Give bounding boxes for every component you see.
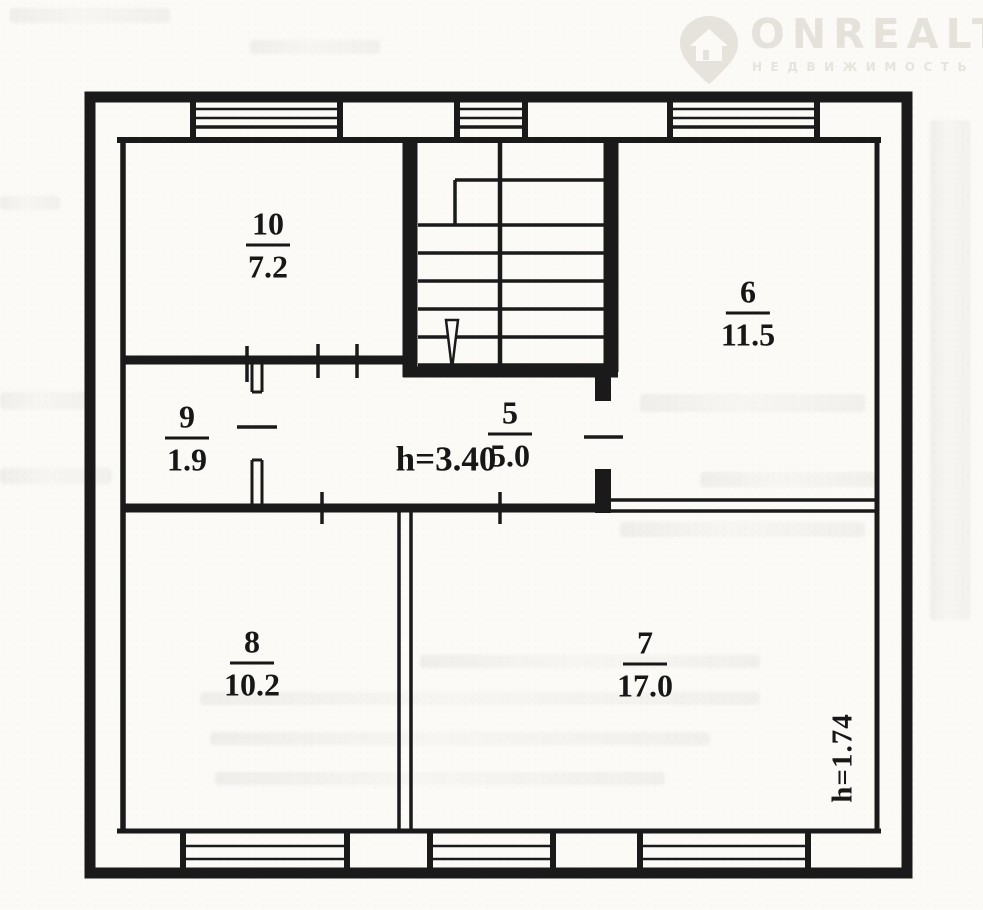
room-10-label: 10 7.2 — [246, 208, 290, 283]
ceiling-height-label: h=3.40 — [396, 442, 497, 477]
room-number: 7 — [634, 627, 656, 663]
room-area: 11.5 — [721, 315, 775, 351]
room-number: 6 — [737, 276, 759, 312]
staircase — [418, 140, 604, 372]
room-number: 10 — [249, 208, 287, 244]
stair-direction-arrow — [446, 320, 458, 369]
room-area: 1.9 — [167, 440, 207, 476]
room-8-label: 8 10.2 — [224, 626, 280, 701]
room-number: 5 — [499, 397, 521, 433]
room-9-label: 9 1.9 — [165, 401, 209, 476]
side-height-label: h=1.74 — [829, 713, 858, 802]
room-6-label: 6 11.5 — [721, 276, 775, 351]
room-area: 17.0 — [617, 666, 673, 702]
room-number: 8 — [241, 626, 263, 662]
scanned-floorplan-page: ONREALT НЕДВИЖИМОСТЬ — [0, 0, 983, 910]
room-area: 7.2 — [248, 247, 288, 283]
room-7-label: 7 17.0 — [617, 627, 673, 702]
room-number: 9 — [176, 401, 198, 437]
room-area: 10.2 — [224, 665, 280, 701]
